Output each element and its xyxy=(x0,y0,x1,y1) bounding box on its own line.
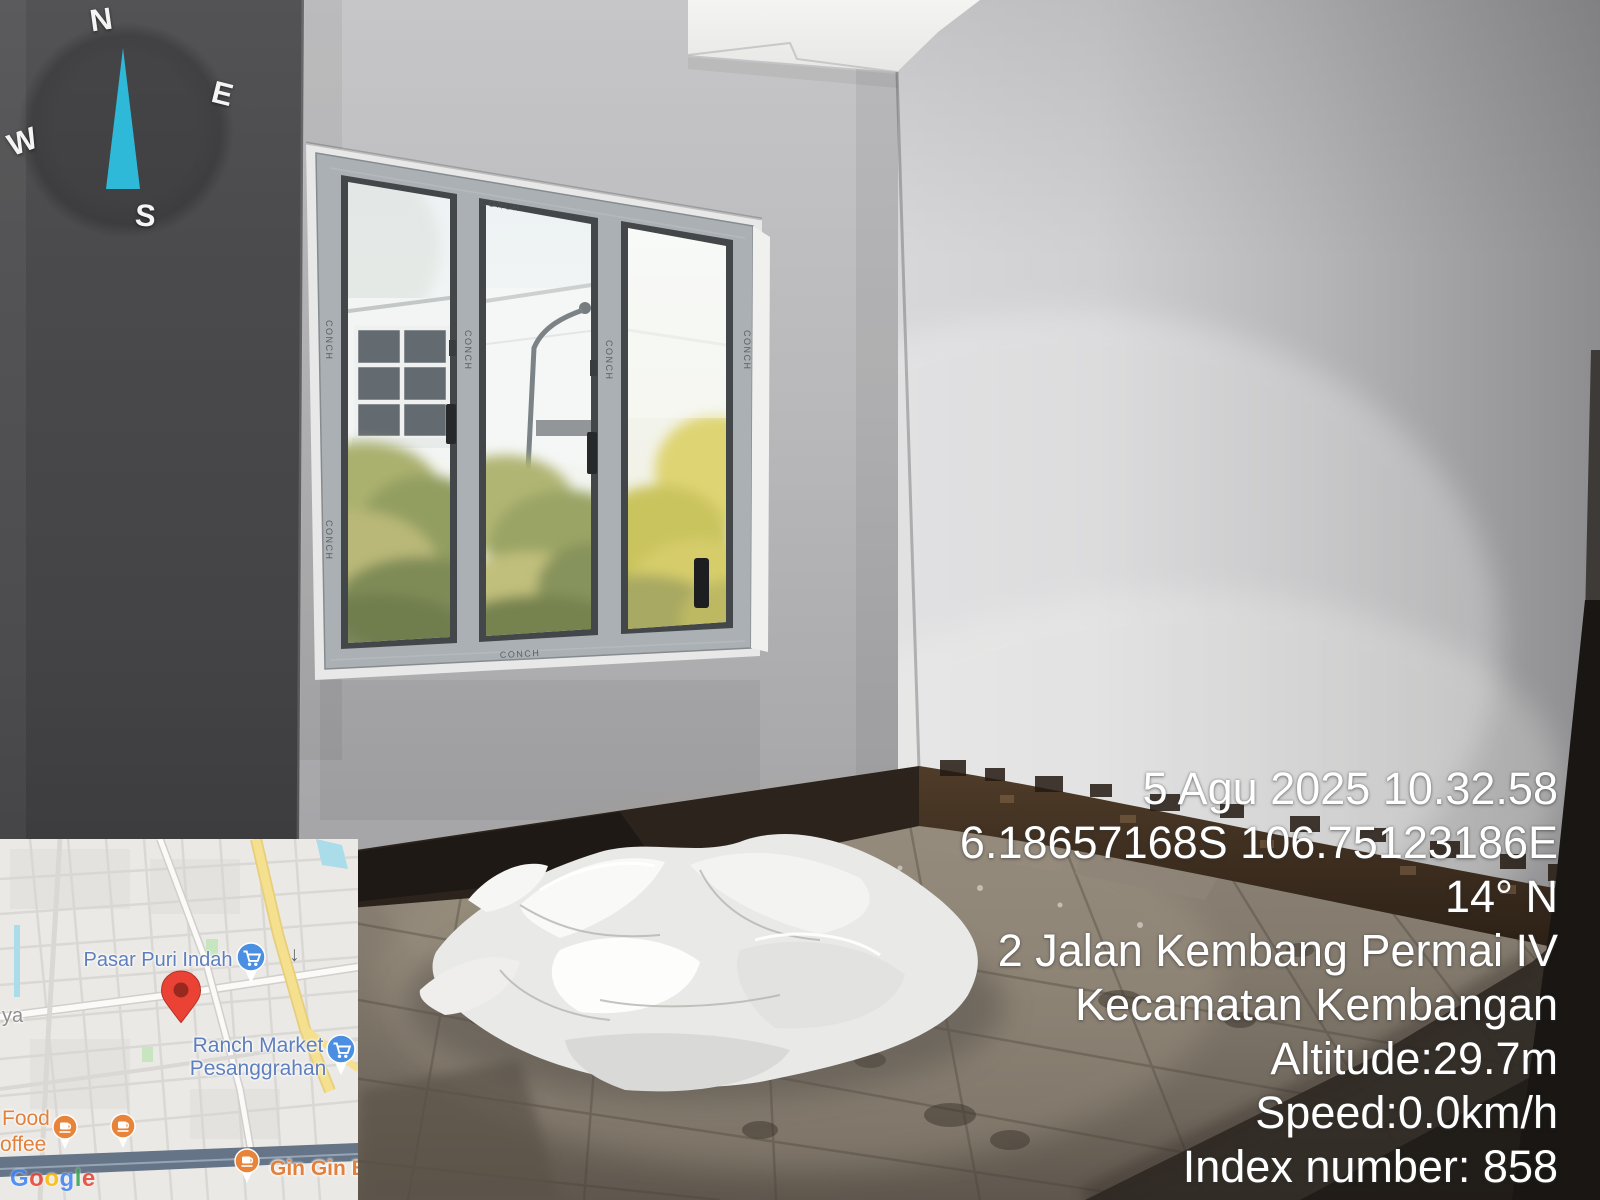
google-logo-letter: g xyxy=(60,1165,75,1193)
gps-speed: Speed:0.0km/h xyxy=(960,1086,1558,1140)
compass-south-label: S xyxy=(134,197,157,234)
compass-widget: N E S W xyxy=(4,0,256,252)
gps-camera-photo: CONCH CONCH CONCH CONCH CONCH CONCH CONC… xyxy=(0,0,1600,1200)
gps-index-number: Index number: 858 xyxy=(960,1140,1558,1194)
window-film-text: CONCH xyxy=(463,330,473,371)
gps-address-line1: 2 Jalan Kembang Permai IV xyxy=(960,924,1558,978)
google-logo: Google xyxy=(10,1165,96,1193)
gps-coordinates: 6.18657168S 106.75123186E xyxy=(960,816,1558,870)
coffee-pin-icon xyxy=(51,1114,79,1150)
map-label-ranch-line1: Ranch Market xyxy=(160,1034,356,1057)
gps-datetime: 5 Agu 2025 10.32.58 xyxy=(960,762,1558,816)
coffee-pin-icon xyxy=(109,1113,137,1149)
coffee-pin-icon xyxy=(233,1148,261,1184)
map-label-pasar-puri-indah: Pasar Puri Indah xyxy=(58,949,258,972)
google-logo-letter: o xyxy=(44,1165,59,1193)
gps-stamp: 5 Agu 2025 10.32.58 6.18657168S 106.7512… xyxy=(960,762,1558,1194)
window: CONCH CONCH CONCH CONCH CONCH CONCH CONC… xyxy=(267,143,780,680)
map-label-street-partial: ya xyxy=(2,1005,23,1028)
compass-north-label: N xyxy=(88,1,115,40)
google-logo-letter: o xyxy=(29,1165,44,1193)
map-label-ranch-market: Ranch Market Pesanggrahan xyxy=(160,1034,356,1080)
google-logo-letter: l xyxy=(75,1165,82,1193)
window-film-text: CONCH xyxy=(500,648,541,660)
window-film-text: CONCH xyxy=(742,330,752,371)
gps-heading: 14° N xyxy=(960,870,1558,924)
gps-altitude: Altitude:29.7m xyxy=(960,1032,1558,1086)
minimap: ↓ Pasar Puri Indah Ranch Market Pesanggr… xyxy=(0,839,358,1200)
google-logo-letter: G xyxy=(10,1165,29,1193)
down-arrow-icon: ↓ xyxy=(289,943,300,967)
window-film-text: CONCH xyxy=(604,340,614,381)
gps-address-line2: Kecamatan Kembangan xyxy=(960,978,1558,1032)
window-film-text: CONCH xyxy=(324,320,334,361)
map-label-coffee-partial: offee xyxy=(0,1133,46,1157)
window-film-text: CONCH xyxy=(324,520,334,561)
map-label-ranch-line2: Pesanggrahan xyxy=(160,1057,356,1080)
location-pin-icon xyxy=(160,970,202,1024)
map-label-gin-gin: Gin Gin Ba xyxy=(270,1157,358,1181)
map-label-food: Food xyxy=(2,1107,50,1131)
google-logo-letter: e xyxy=(82,1165,96,1193)
